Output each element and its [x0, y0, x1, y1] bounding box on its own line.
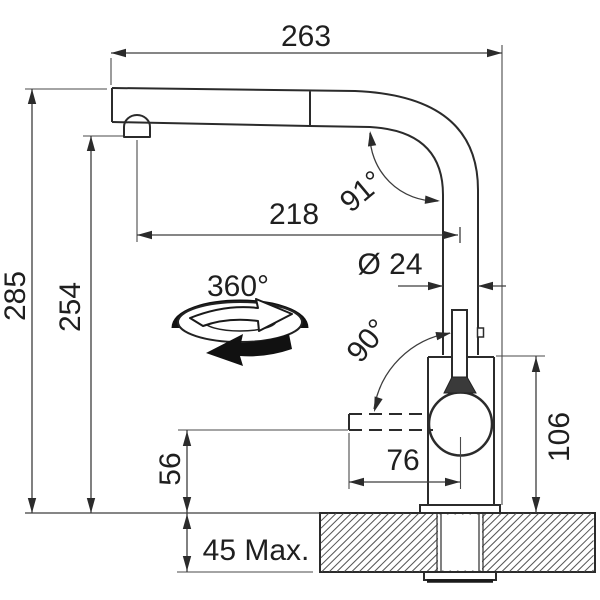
- pipe-clip: [478, 328, 484, 337]
- swivel-360-group: 360°: [178, 270, 302, 366]
- dim-pipe-diameter-label: Ø 24: [357, 248, 422, 281]
- mounting-nut: [424, 572, 496, 580]
- dim-spray-reach-label: 76: [386, 444, 419, 477]
- dim-spout-reach-label: 218: [269, 198, 319, 231]
- faucet-technical-drawing: 263 285 254 218 91° Ø 24: [0, 0, 600, 600]
- stem-flare: [444, 377, 476, 393]
- countertop-section: [25, 505, 595, 581]
- aerator-head: [124, 115, 150, 137]
- tap-hole: [438, 515, 482, 571]
- dim-max-counter-thickness-label: 45 Max.: [203, 534, 310, 567]
- wand-stem: [452, 310, 467, 378]
- dim-spout-reach-group: 218: [137, 140, 460, 243]
- dim-pipe-diameter-group: Ø 24: [357, 248, 506, 290]
- dim-spout-height-group: 254: [54, 136, 123, 513]
- dim-counter-thickness-group: 45 Max.: [177, 513, 313, 572]
- drawing-svg: 263 285 254 218 91° Ø 24: [0, 0, 600, 600]
- dim-swivel-angle-label: 360°: [207, 270, 269, 303]
- dim-spray-height-group: 56: [154, 430, 348, 513]
- dim-spout-height-label: 254: [54, 282, 87, 332]
- dim-spray-angle-group: 90°: [340, 313, 451, 413]
- faucet-outline: [112, 88, 494, 505]
- dim-overall-depth-label: 263: [281, 20, 331, 53]
- dim-spray-angle-label: 90°: [340, 313, 394, 369]
- rotation-360-icon: [178, 299, 302, 366]
- pullout-spray-dashed: [349, 414, 433, 430]
- dim-overall-height-label: 285: [0, 271, 32, 321]
- dim-spout-angle-group: 91°: [334, 130, 440, 219]
- dim-body-height-label: 106: [543, 412, 576, 462]
- base-flange: [420, 505, 500, 513]
- dim-body-height-group: 106: [496, 356, 576, 513]
- dim-spray-height-label: 56: [154, 452, 187, 485]
